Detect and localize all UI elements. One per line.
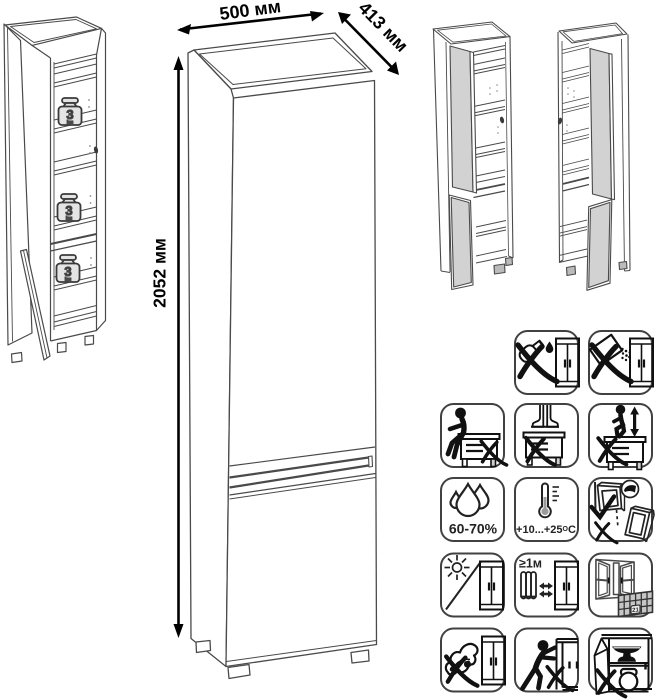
svg-text:≥1м: ≥1м [519, 557, 542, 571]
svg-text:413 мм: 413 мм [355, 0, 412, 56]
svg-text:kg: kg [67, 120, 73, 126]
svg-text:kg: kg [66, 216, 72, 222]
svg-text:21: 21 [632, 607, 639, 614]
svg-text:2052 мм: 2052 мм [150, 238, 170, 308]
svg-text:60-70%: 60-70% [449, 521, 498, 537]
svg-text:kg: kg [65, 277, 71, 283]
